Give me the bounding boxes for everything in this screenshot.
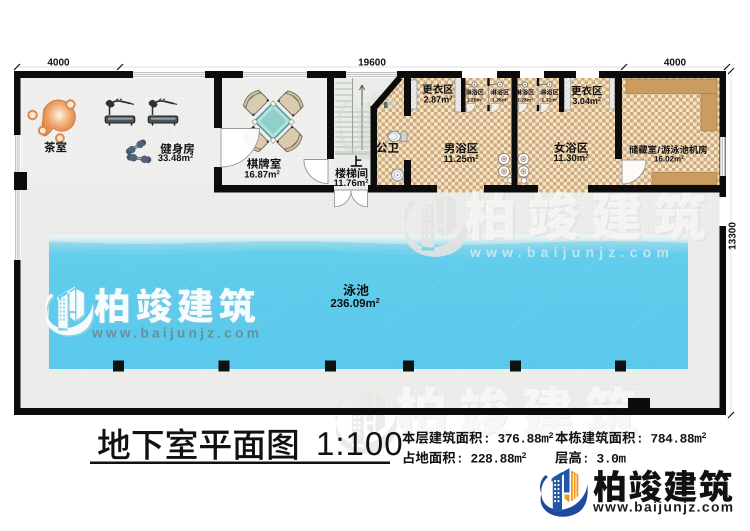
svg-text:/: / <box>657 145 660 155</box>
svg-text:16.02m2: 16.02m2 <box>654 154 684 163</box>
svg-text:: 784.88m2: : 784.88m2 <box>636 431 707 447</box>
svg-text:1.12m2: 1.12m2 <box>542 97 558 104</box>
svg-text:www.baijunjz.com: www.baijunjz.com <box>469 244 674 260</box>
svg-text:19600: 19600 <box>358 57 386 68</box>
svg-text:236.09m2: 236.09m2 <box>330 297 379 310</box>
svg-text:16.87m2: 16.87m2 <box>244 169 280 180</box>
svg-text:4000: 4000 <box>47 57 70 68</box>
svg-text:11.30m2: 11.30m2 <box>554 153 590 164</box>
svg-text:13300: 13300 <box>728 222 739 250</box>
svg-text:2.87m2: 2.87m2 <box>424 94 453 104</box>
svg-text:: 3.0m: : 3.0m <box>582 452 626 467</box>
svg-text:: 376.88m2: : 376.88m2 <box>483 431 554 447</box>
svg-text:3.04m2: 3.04m2 <box>572 96 601 106</box>
svg-text:www.baijunjz.com: www.baijunjz.com <box>592 499 734 514</box>
svg-text:1.26m2: 1.26m2 <box>467 97 483 104</box>
svg-text:11.25m2: 11.25m2 <box>444 154 480 165</box>
svg-text:4000: 4000 <box>664 57 687 68</box>
svg-text:1:100: 1:100 <box>316 425 404 462</box>
svg-text:: 228.88m2: : 228.88m2 <box>456 451 527 467</box>
svg-text:11.76m2: 11.76m2 <box>334 178 370 189</box>
svg-text:33.48m2: 33.48m2 <box>158 153 194 164</box>
svg-text:1.26m2: 1.26m2 <box>517 97 533 104</box>
svg-text:1.26m2: 1.26m2 <box>492 97 508 104</box>
svg-text:www.baijunjz.com: www.baijunjz.com <box>91 325 262 340</box>
